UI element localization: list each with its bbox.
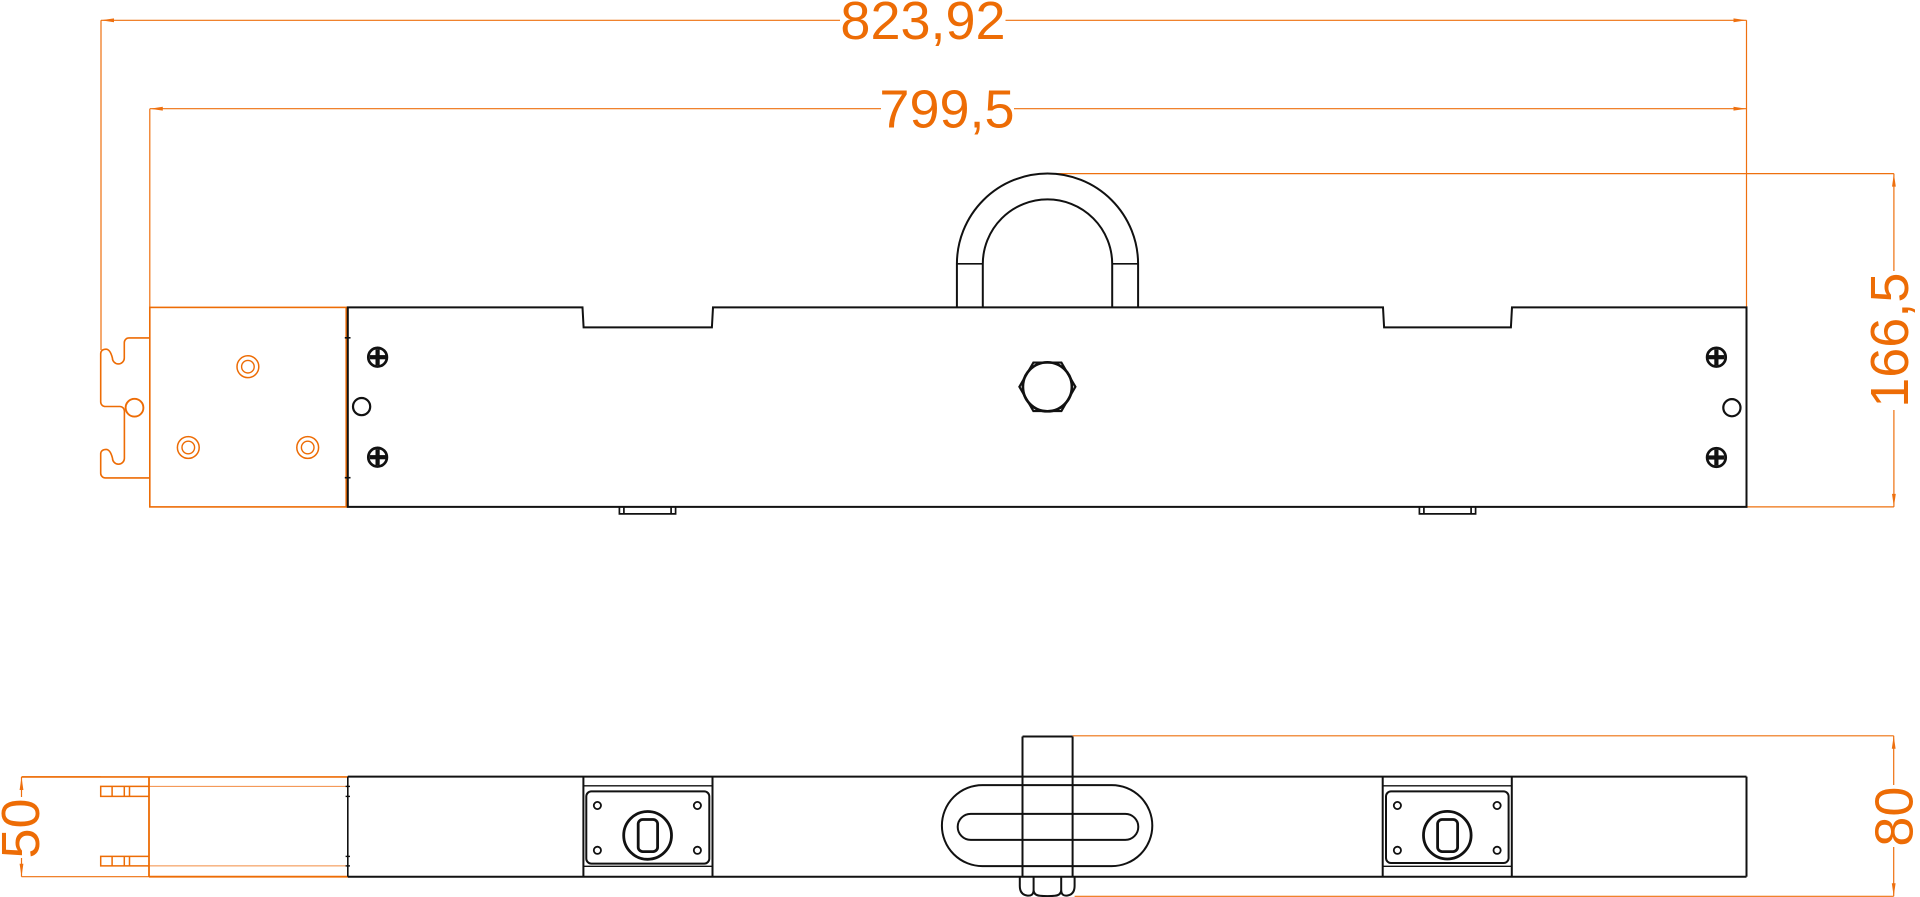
svg-text:823,92: 823,92: [840, 0, 1005, 51]
svg-text:166,5: 166,5: [1860, 273, 1920, 408]
svg-text:799,5: 799,5: [879, 80, 1014, 140]
svg-text:80: 80: [1864, 787, 1920, 847]
svg-text:50: 50: [0, 798, 51, 858]
